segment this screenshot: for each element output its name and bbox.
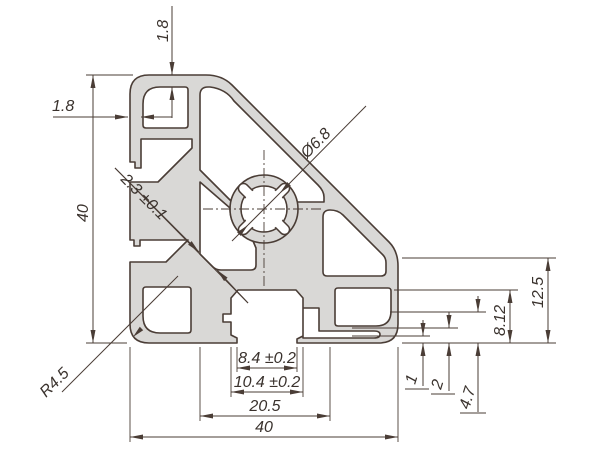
dim-left-wall-label: 1.8 [52,98,74,115]
dim-left-wall: 1.8 [52,98,172,117]
dim-top-wall-label: 1.8 [155,20,172,42]
dim-lip-mid-label: 2 [428,378,447,393]
dim-right-edge: 12.5 [402,258,556,343]
dim-slot-span-label: 20.5 [248,398,280,415]
profile-drawing: 1.8 1.8 40 2.3 ±0.1 Ø6.8 [0,0,600,450]
dim-lip-large-label: 4.7 [457,384,480,411]
dim-right-mid: 8.12 [394,290,518,343]
dim-right-edge-label: 12.5 [530,277,547,308]
dim-slot-inner-label: 8.4 ±0.2 [238,350,296,367]
dim-lip-large: 4.7 [390,296,486,413]
dim-width-label: 40 [255,419,273,436]
dim-height-label: 40 [75,204,92,222]
dim-lip-small-label: 1 [403,373,422,386]
dim-corner-radius-label: R4.5 [37,365,73,401]
dim-slot-outer-label: 10.4 ±0.2 [234,374,301,391]
dim-slot-inner: 8.4 ±0.2 [237,347,297,372]
drawing-canvas: 1.8 1.8 40 2.3 ±0.1 Ø6.8 [0,0,600,450]
dim-top-wall: 1.8 [155,6,172,118]
dim-right-mid-label: 8.12 [492,305,509,336]
dim-height: 40 [75,75,133,343]
